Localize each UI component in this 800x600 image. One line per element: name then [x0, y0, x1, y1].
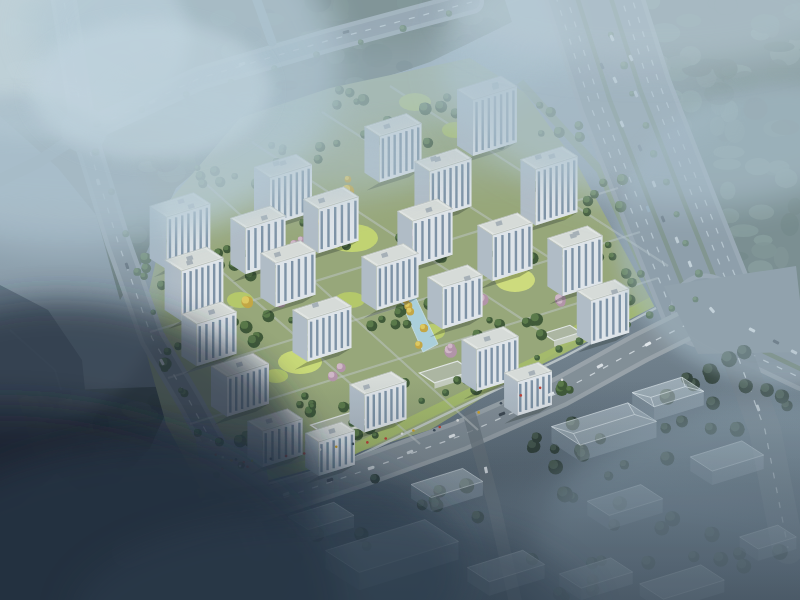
atmosphere-tint	[0, 0, 800, 600]
aerial-render	[0, 0, 800, 600]
scene-canvas	[0, 0, 800, 600]
fog-atmosphere	[0, 0, 800, 600]
